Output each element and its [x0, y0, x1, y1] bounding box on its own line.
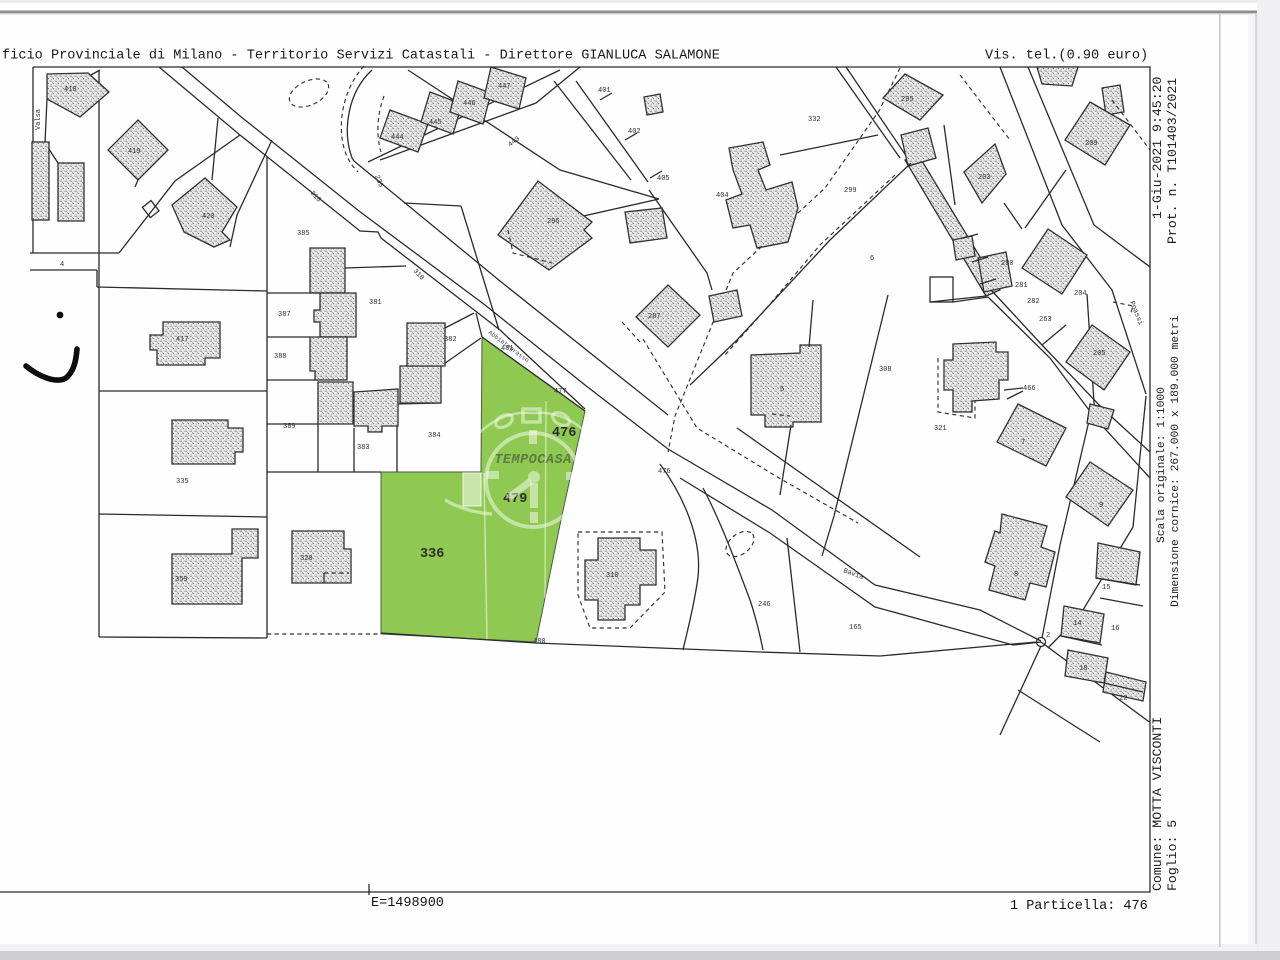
svg-text:280: 280: [1001, 260, 1014, 268]
svg-text:5: 5: [780, 386, 784, 394]
svg-text:383: 383: [357, 444, 370, 452]
svg-text:401: 401: [598, 87, 611, 95]
svg-text:282: 282: [1027, 298, 1040, 306]
svg-text:15: 15: [1102, 584, 1110, 592]
svg-text:387: 387: [278, 311, 291, 319]
svg-text:447: 447: [498, 83, 511, 91]
svg-text:281: 281: [1015, 282, 1028, 290]
svg-text:480: 480: [533, 638, 546, 646]
svg-text:204: 204: [1074, 290, 1087, 298]
svg-text:444: 444: [391, 134, 404, 142]
svg-text:Vis. tel.(0.90 euro): Vis. tel.(0.90 euro): [985, 49, 1148, 64]
svg-text:263: 263: [1039, 316, 1052, 324]
svg-text:321: 321: [934, 425, 947, 433]
svg-text:7: 7: [1021, 439, 1025, 447]
svg-text:382: 382: [444, 336, 457, 344]
svg-text:2: 2: [1046, 632, 1050, 640]
svg-text:1-Giu-2021 9:45:20: 1-Giu-2021 9:45:20: [1150, 76, 1165, 219]
svg-text:295: 295: [901, 96, 914, 104]
svg-text:419: 419: [128, 148, 141, 156]
svg-text:335: 335: [176, 478, 189, 486]
svg-text:405: 405: [657, 175, 670, 183]
svg-text:246: 246: [758, 601, 771, 609]
svg-text:16: 16: [1111, 625, 1119, 633]
svg-text:476: 476: [658, 468, 671, 476]
svg-text:332: 332: [808, 116, 821, 124]
svg-text:402: 402: [628, 128, 641, 136]
svg-text:203: 203: [978, 174, 991, 182]
svg-text:Scala originale: 1:1000: Scala originale: 1:1000: [1156, 387, 1168, 543]
svg-text:Valsa: Valsa: [35, 109, 43, 130]
svg-text:296: 296: [547, 218, 560, 226]
svg-text:384: 384: [428, 432, 441, 440]
svg-text:6: 6: [870, 255, 874, 263]
svg-text:TEMPOCASA: TEMPOCASA: [494, 453, 571, 468]
svg-text:404: 404: [716, 192, 729, 200]
svg-text:E=1498900: E=1498900: [371, 896, 444, 911]
svg-text:417: 417: [176, 336, 189, 344]
svg-text:209: 209: [1085, 140, 1098, 148]
svg-text:418: 418: [64, 86, 77, 94]
svg-text:359: 359: [175, 576, 188, 584]
svg-text:165: 165: [849, 624, 862, 632]
svg-text:287: 287: [648, 313, 661, 321]
svg-text:9: 9: [1099, 502, 1103, 510]
svg-text:Prot. n. T101403/2021: Prot. n. T101403/2021: [1165, 78, 1180, 244]
svg-text:ficio Provinciale di Milano -: ficio Provinciale di Milano - Territorio…: [2, 49, 720, 64]
svg-text:388: 388: [274, 353, 287, 361]
svg-text:466: 466: [1023, 385, 1036, 393]
svg-text:308: 308: [879, 366, 892, 374]
svg-text:320: 320: [300, 555, 313, 563]
svg-text:310: 310: [606, 572, 619, 580]
svg-text:205: 205: [1093, 350, 1106, 358]
svg-text:Comune: MOTTA VISCONTI: Comune: MOTTA VISCONTI: [1150, 717, 1165, 891]
svg-text:14: 14: [1073, 620, 1081, 628]
svg-text:385: 385: [297, 230, 310, 238]
svg-text:445: 445: [429, 119, 442, 127]
svg-text:299: 299: [844, 187, 857, 195]
svg-text:420: 420: [202, 213, 215, 221]
svg-text:389: 389: [283, 423, 296, 431]
svg-text:22: 22: [1119, 695, 1127, 703]
svg-text:446: 446: [463, 100, 476, 108]
svg-text:4: 4: [60, 261, 64, 269]
svg-text:Dimensione cornice: 267.000 x: Dimensione cornice: 267.000 x 189.000 me…: [1170, 315, 1182, 607]
svg-text:336: 336: [420, 547, 444, 562]
svg-text:477: 477: [554, 388, 567, 396]
svg-text:8: 8: [1014, 571, 1018, 579]
svg-text:1 Particella: 476: 1 Particella: 476: [1010, 899, 1148, 914]
svg-text:381: 381: [369, 299, 382, 307]
svg-text:18: 18: [1079, 665, 1087, 673]
svg-text:Foglio: 5: Foglio: 5: [1165, 820, 1180, 891]
